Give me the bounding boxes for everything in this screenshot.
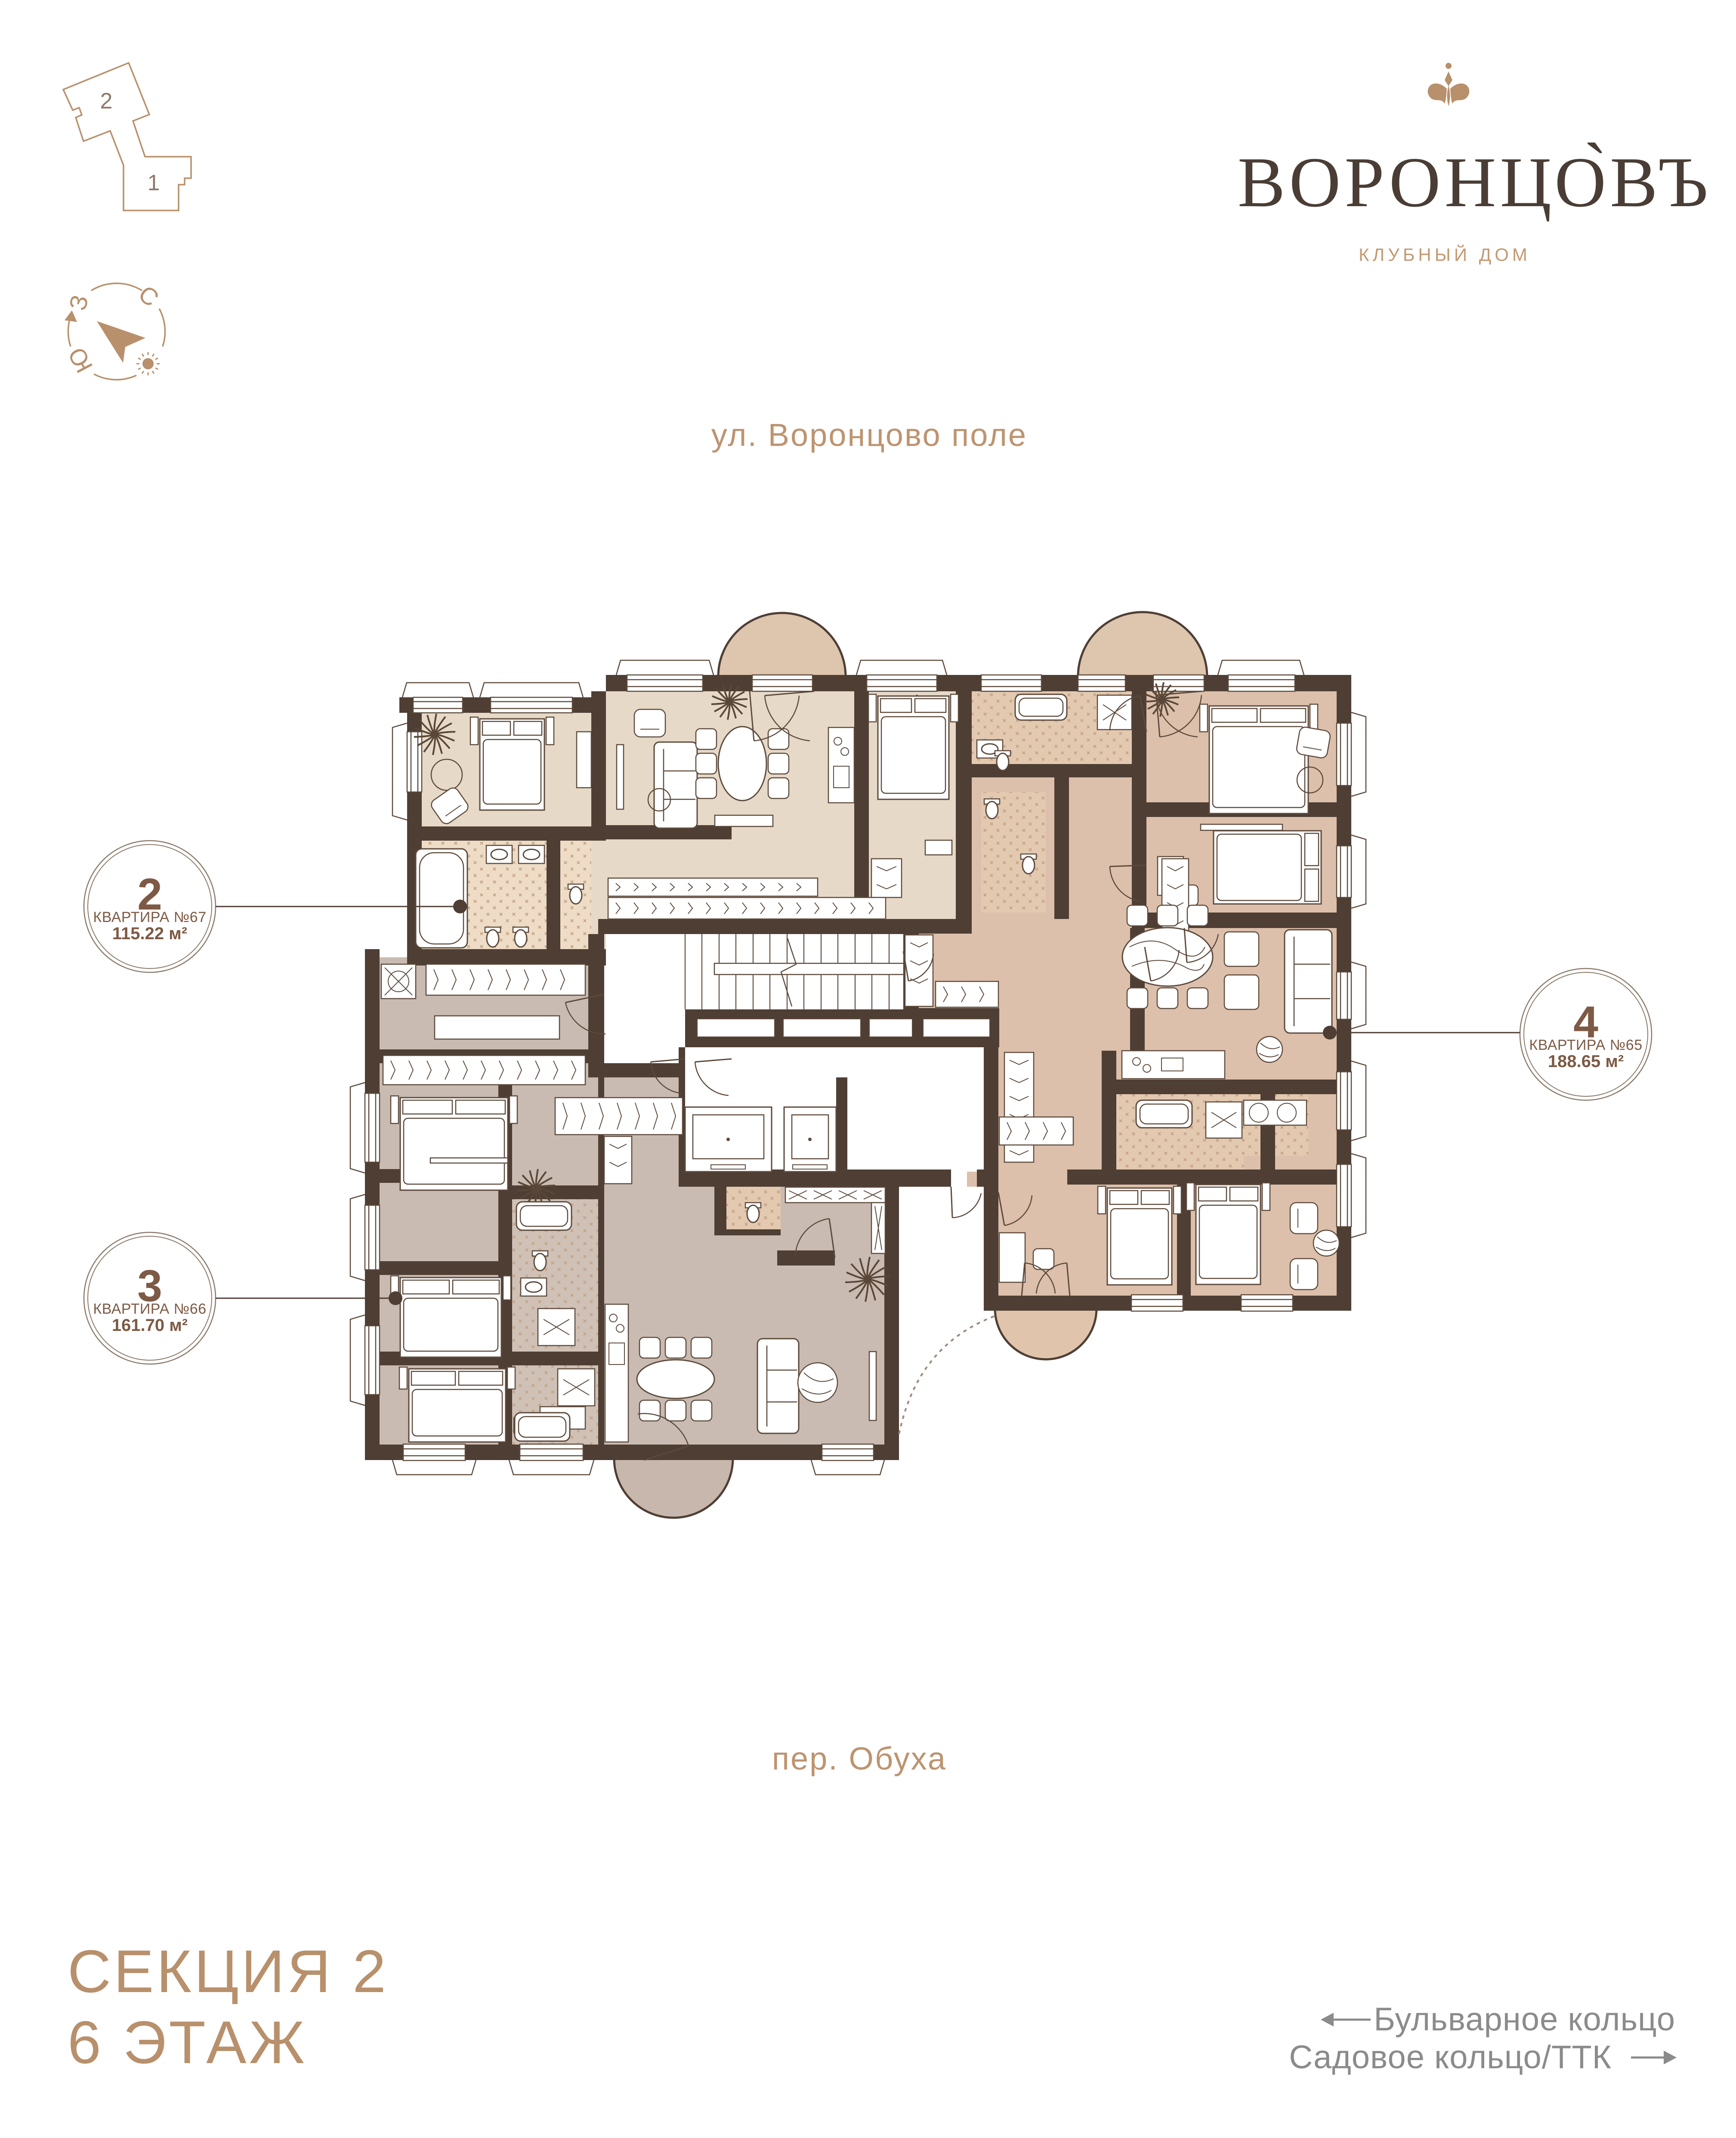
svg-text:188.65 м²: 188.65 м²	[1548, 1052, 1624, 1071]
svg-text:ВОРОНЦО̀ВЪ: ВОРОНЦО̀ВЪ	[1238, 142, 1712, 222]
svg-text:КВАРТИРА №65: КВАРТИРА №65	[1529, 1037, 1642, 1053]
svg-text:КЛУБНЫЙ ДОМ: КЛУБНЫЙ ДОМ	[1359, 244, 1531, 265]
svg-text:Садовое кольцо/ТТК: Садовое кольцо/ТТК	[1289, 2039, 1612, 2076]
svg-text:ул. Воронцово поле: ул. Воронцово поле	[711, 417, 1027, 453]
svg-text:115.22 м²: 115.22 м²	[112, 924, 187, 943]
svg-text:2: 2	[100, 89, 113, 114]
svg-text:КВАРТИРА №66: КВАРТИРА №66	[93, 1301, 206, 1317]
svg-text:Бульварное кольцо: Бульварное кольцо	[1374, 2001, 1675, 2038]
svg-text:пер. Обуха: пер. Обуха	[772, 1741, 947, 1776]
svg-text:161.70 м²: 161.70 м²	[112, 1316, 188, 1335]
svg-text:6 ЭТАЖ: 6 ЭТАЖ	[68, 2008, 307, 2076]
svg-text:СЕКЦИЯ 2: СЕКЦИЯ 2	[68, 1937, 389, 2005]
svg-text:1: 1	[148, 170, 160, 195]
svg-text:КВАРТИРА №67: КВАРТИРА №67	[93, 909, 206, 925]
